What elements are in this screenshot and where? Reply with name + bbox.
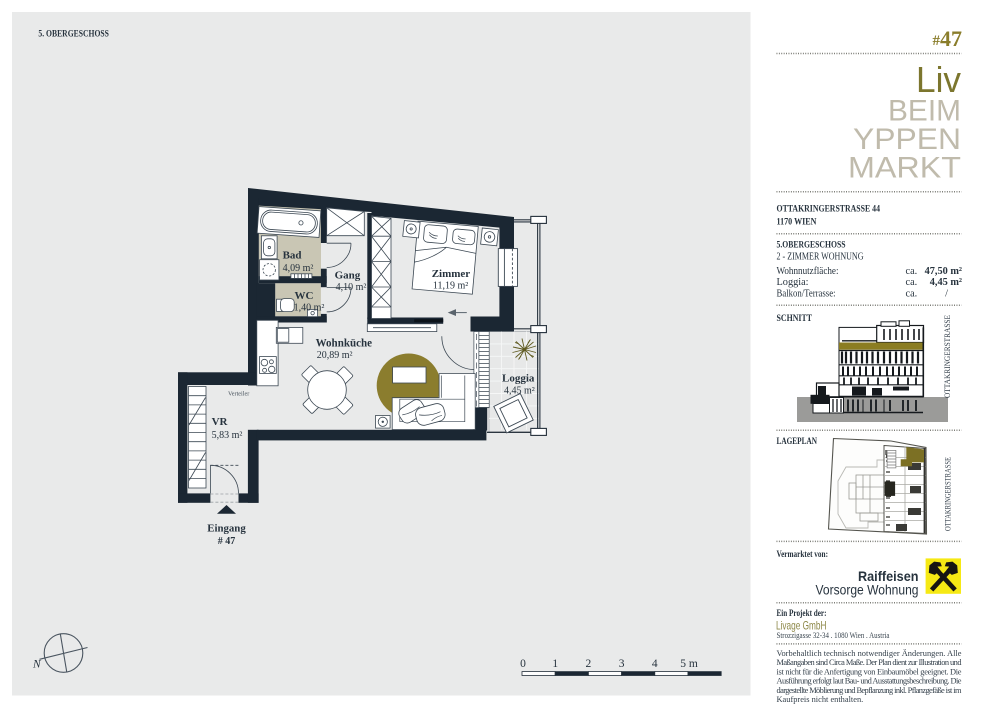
svg-text:ca.: ca. xyxy=(906,288,918,299)
svg-text:5,83 m²: 5,83 m² xyxy=(212,430,243,441)
svg-text:SCHNITT: SCHNITT xyxy=(777,313,813,324)
svg-text:Vorsorge Wohnung: Vorsorge Wohnung xyxy=(816,583,919,598)
svg-text:Ein Projekt der:: Ein Projekt der: xyxy=(777,608,827,619)
svg-text:ca.: ca. xyxy=(906,266,918,277)
svg-text:Bad: Bad xyxy=(283,250,302,262)
svg-text:4,45 m²: 4,45 m² xyxy=(504,385,535,396)
svg-text:5. OBERGESCHOSS: 5. OBERGESCHOSS xyxy=(38,29,109,40)
svg-text:MARKT: MARKT xyxy=(848,151,961,184)
svg-text:4: 4 xyxy=(652,658,658,670)
svg-text:1170 WIEN: 1170 WIEN xyxy=(777,217,817,228)
svg-text:Maßangaben sind Circa Maße. De: Maßangaben sind Circa Maße. Der Plan die… xyxy=(777,658,963,667)
svg-text:2: 2 xyxy=(586,658,592,670)
svg-text:1,40 m²: 1,40 m² xyxy=(294,303,325,314)
svg-text:5 m: 5 m xyxy=(680,658,698,670)
svg-text:OTTAKRINGERSTRASSE 44: OTTAKRINGERSTRASSE 44 xyxy=(777,204,881,215)
svg-text:Wohnküche: Wohnküche xyxy=(316,338,373,350)
svg-text:Loggia: Loggia xyxy=(502,373,535,385)
svg-text:Verteiler: Verteiler xyxy=(228,391,249,398)
svg-text:# 47: # 47 xyxy=(218,536,236,547)
svg-text:ca.: ca. xyxy=(906,277,918,288)
svg-text:Loggia:: Loggia: xyxy=(777,277,809,288)
svg-text:OTTAKRINGERSTRASSE: OTTAKRINGERSTRASSE xyxy=(944,457,953,531)
svg-text:OTTAKRINGERSTRASSE: OTTAKRINGERSTRASSE xyxy=(943,315,952,398)
svg-text:/: / xyxy=(945,288,948,299)
svg-text:Kaufpreis nicht enthalten.: Kaufpreis nicht enthalten. xyxy=(777,695,864,704)
svg-text:Wohnnutzfläche:: Wohnnutzfläche: xyxy=(777,266,839,277)
svg-text:N: N xyxy=(32,659,42,671)
svg-text:5.OBERGESCHOSS: 5.OBERGESCHOSS xyxy=(777,239,846,250)
svg-text:4,45 m²: 4,45 m² xyxy=(930,277,962,288)
svg-text:Vorbehaltlich technisch notwen: Vorbehaltlich technisch notwendiger Ände… xyxy=(777,649,962,658)
svg-text:20,89 m²: 20,89 m² xyxy=(317,350,353,361)
svg-text:ist nicht für die Anfertigung: ist nicht für die Anfertigung von Einbau… xyxy=(777,667,962,676)
svg-text:2 - ZIMMER WOHNUNG: 2 - ZIMMER WOHNUNG xyxy=(777,251,864,262)
svg-text:3: 3 xyxy=(619,658,625,670)
svg-text:WC: WC xyxy=(295,290,314,302)
svg-text:47,50 m²: 47,50 m² xyxy=(925,266,962,277)
svg-text:Ausführung erfolgt laut Bau- u: Ausführung erfolgt laut Bau- und Ausstat… xyxy=(777,677,962,686)
svg-text:Eingang: Eingang xyxy=(207,523,246,535)
svg-text:Balkon/Terrasse:: Balkon/Terrasse: xyxy=(777,288,836,299)
svg-text:4,10 m²: 4,10 m² xyxy=(336,282,367,293)
svg-text:Gang: Gang xyxy=(335,269,361,281)
svg-text:Strozzigasse 32-34 . 1080 Wien: Strozzigasse 32-34 . 1080 Wien . Austria xyxy=(777,630,890,640)
svg-text:dargestellte Möblierung und Be: dargestellte Möblierung und Bepflanzung … xyxy=(777,686,962,695)
svg-text:LAGEPLAN: LAGEPLAN xyxy=(777,436,818,447)
svg-text:4,09 m²: 4,09 m² xyxy=(283,263,314,274)
svg-text:Vermarktet von:: Vermarktet von: xyxy=(777,549,829,560)
svg-text:11,19 m²: 11,19 m² xyxy=(433,280,468,291)
svg-text:VR: VR xyxy=(212,416,229,428)
svg-text:Zimmer: Zimmer xyxy=(432,268,471,280)
svg-text:0: 0 xyxy=(520,658,526,670)
svg-text:1: 1 xyxy=(552,658,558,670)
